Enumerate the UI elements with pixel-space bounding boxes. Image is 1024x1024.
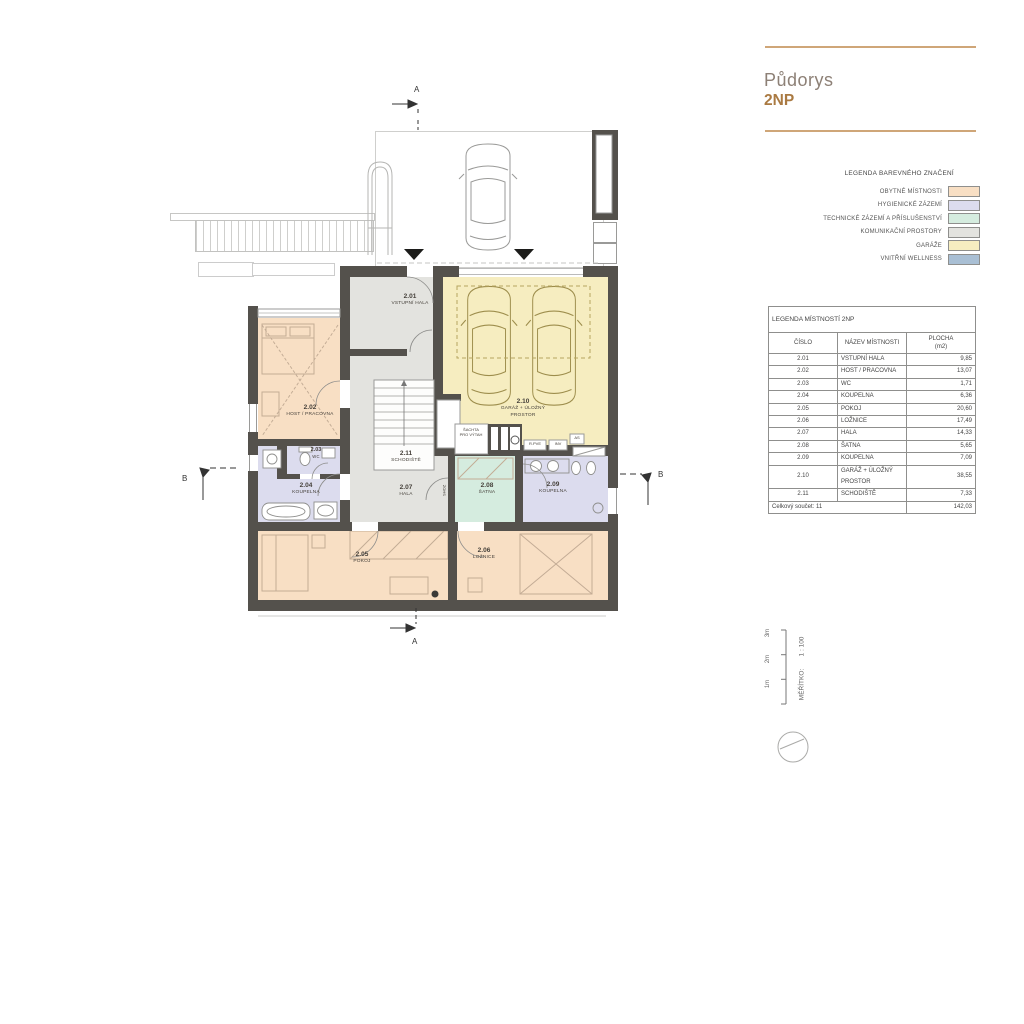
swatch-obytne bbox=[948, 186, 980, 197]
scale-ratio: 1 : 100 bbox=[799, 627, 806, 667]
exterior-arch bbox=[368, 162, 392, 255]
wall bbox=[248, 600, 618, 611]
title-rule-top bbox=[765, 46, 976, 48]
section-marker-b-left bbox=[200, 468, 237, 500]
room-label-2-07: 2.07HALA bbox=[399, 484, 412, 499]
swatch-wellness bbox=[948, 254, 980, 265]
scale-tick-2m: 2m bbox=[765, 649, 771, 669]
scale-tick-3m: 3m bbox=[765, 623, 771, 643]
section-letter-b-left: B bbox=[182, 474, 187, 483]
car-driveway bbox=[459, 144, 517, 250]
section-letter-b-right: B bbox=[658, 470, 663, 479]
table-row: 2.09KOUPELNA7,09 bbox=[769, 453, 976, 465]
room-label-2-01: 2.01VSTUPNÍ HALA bbox=[391, 293, 428, 308]
legend-row-technicke: TECHNICKÉ ZÁZEMÍ A PŘÍSLUŠENSTVÍ bbox=[742, 212, 980, 226]
table-row: 2.01VSTUPNÍ HALA9,85 bbox=[769, 354, 976, 366]
entrance-marker bbox=[514, 249, 534, 260]
col-header-nazev: NÁZEV MÍSTNOSTI bbox=[838, 333, 907, 354]
table-row: 2.08ŠATNA5,65 bbox=[769, 440, 976, 452]
table-row: 2.07HALA14,33 bbox=[769, 428, 976, 440]
room-table: LEGENDA MÍSTNOSTÍ 2NP ČÍSLO NÁZEV MÍSTNO… bbox=[768, 306, 976, 514]
wall bbox=[448, 456, 455, 522]
page-title: Půdorys bbox=[764, 70, 834, 91]
exterior-shelf-bay bbox=[596, 135, 612, 213]
room-label-2-06: 2.06LOŽNICE bbox=[473, 547, 495, 562]
column-dot bbox=[432, 591, 439, 598]
wall bbox=[448, 531, 457, 600]
section-letter-a-top: A bbox=[414, 85, 419, 94]
entrance-marker bbox=[404, 249, 424, 260]
color-legend: LEGENDA BAREVNÉHO ZNAČENÍ OBYTNÉ MÍSTNOS… bbox=[742, 170, 980, 266]
legend-row-hygienicke: HYGIENICKÉ ZÁZEMÍ bbox=[742, 199, 980, 213]
room-table-total-row: Celkový součet: 11 142,03 bbox=[769, 501, 976, 513]
table-row: 2.02HOST / PRACOVNA13,07 bbox=[769, 366, 976, 378]
room-label-2-04: 2.04KOUPELNA bbox=[292, 482, 320, 497]
legend-row-garaze: GARÁŽE bbox=[742, 239, 980, 253]
title-rule-bottom bbox=[765, 130, 976, 132]
room-label-2-10: 2.10GARÁŽ + ÚLOŽNÝPROSTOR bbox=[501, 398, 545, 419]
room-table-header: ČÍSLO NÁZEV MÍSTNOSTI PLOCHA(m2) bbox=[769, 333, 976, 354]
room-table-title: LEGENDA MÍSTNOSTÍ 2NP bbox=[769, 307, 976, 333]
swatch-technicke bbox=[948, 213, 980, 224]
legend-row-wellness: VNITŘNÍ WELLNESS bbox=[742, 253, 980, 267]
room-label-2-05: 2.05POKOJ bbox=[353, 551, 370, 566]
room-label-2-08: 2.08ŠATNA bbox=[479, 482, 496, 497]
wall bbox=[515, 456, 523, 522]
room-label-2-09: 2.09KOUPELNA bbox=[539, 481, 567, 496]
compass-icon bbox=[778, 732, 808, 762]
swatch-komunikacni bbox=[948, 227, 980, 238]
section-marker-a-top bbox=[392, 100, 418, 130]
legend-row-komunikacni: KOMUNIKAČNÍ PROSTORY bbox=[742, 226, 980, 240]
room-label-2-02: 2.02HOST / PRACOVNA bbox=[286, 404, 333, 419]
total-value: 142,03 bbox=[907, 501, 976, 513]
rpve-label: R.PVE bbox=[529, 442, 541, 447]
shaft-label: ŠACHTA PRO VÝTAH bbox=[460, 428, 483, 438]
col-header-cislo: ČÍSLO bbox=[769, 333, 838, 354]
total-label: Celkový součet: 11 bbox=[769, 501, 907, 513]
room-fill-vstupni-hala bbox=[350, 277, 433, 350]
table-row: 2.06LOŽNICE17,49 bbox=[769, 416, 976, 428]
scale-ruler bbox=[781, 630, 786, 704]
swatch-hygienicke bbox=[948, 200, 980, 211]
section-marker-a-bottom bbox=[390, 608, 416, 632]
table-row: 2.04KOUPELNA6,36 bbox=[769, 391, 976, 403]
section-marker-b-right bbox=[620, 473, 651, 505]
shoz-label: SHOZ bbox=[443, 485, 448, 496]
wall bbox=[248, 522, 618, 531]
section-letter-a-bottom: A bbox=[412, 637, 417, 646]
swatch-garaze bbox=[948, 240, 980, 251]
room-fill-loznice bbox=[457, 531, 608, 600]
table-row: 2.11SCHODIŠTĚ7,33 bbox=[769, 489, 976, 501]
as-label: AS bbox=[574, 436, 579, 441]
room-label-2-11: 2.11SCHODIŠTĚ bbox=[391, 450, 421, 465]
wall bbox=[248, 439, 340, 446]
table-row: 2.10GARÁŽ + ÚLOŽNÝ PROSTOR38,55 bbox=[769, 465, 976, 489]
wall bbox=[608, 266, 618, 611]
room-label-2-03: 2.03WC bbox=[311, 447, 322, 460]
wall bbox=[437, 266, 459, 277]
color-legend-header: LEGENDA BAREVNÉHO ZNAČENÍ bbox=[742, 170, 980, 177]
wall bbox=[345, 349, 407, 356]
scale-label: MĚŘÍTKO: bbox=[799, 663, 806, 707]
table-row: 2.05POKOJ20,60 bbox=[769, 403, 976, 415]
inv-label: INV bbox=[555, 442, 562, 447]
table-row: 2.03WC1,71 bbox=[769, 378, 976, 390]
col-header-plocha: PLOCHA(m2) bbox=[907, 333, 976, 354]
scale-tick-1m: 1m bbox=[765, 674, 771, 694]
floor-title: 2NP bbox=[764, 92, 794, 110]
legend-row-obytne: OBYTNÉ MÍSTNOSTI bbox=[742, 185, 980, 199]
